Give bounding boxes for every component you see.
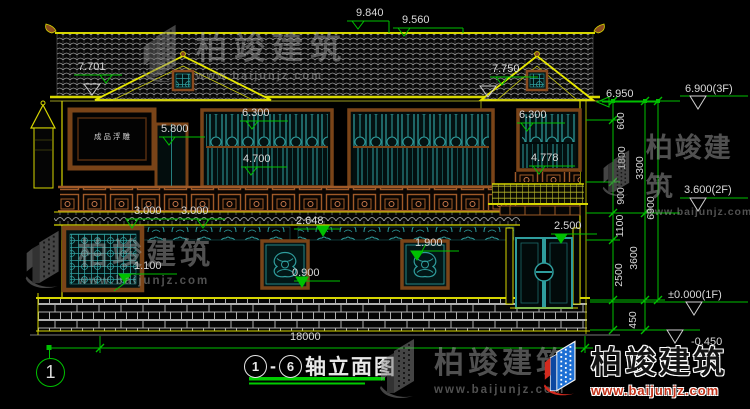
logo-url-text: www.baijunjz.com xyxy=(591,383,727,398)
dim-win1-b: 1.900 xyxy=(415,237,443,249)
watermark-top: 柏竣建筑 www.baijunjz.com xyxy=(140,22,348,82)
dim-total-width: 18000 xyxy=(290,331,321,343)
watermark-brand: 柏竣建筑 xyxy=(646,126,750,204)
balcony-slab xyxy=(54,212,520,225)
dim-bay-b: 3.000 xyxy=(181,205,209,217)
dim-v2500: 2500 xyxy=(613,253,625,297)
watermark-brand: 柏竣建筑 xyxy=(196,23,348,68)
watermark-brand: 柏竣建筑 xyxy=(78,229,214,273)
brand-building-icon xyxy=(378,336,426,398)
logo-brand-text: 柏竣建筑 xyxy=(591,337,727,382)
brand-building-icon xyxy=(602,147,638,197)
window-group-left xyxy=(202,110,332,187)
dim-win-wing: 4.778 xyxy=(531,152,559,164)
entry-canopy xyxy=(488,172,588,215)
dim-v3600: 3600 xyxy=(628,236,640,280)
window-group-center xyxy=(349,110,493,187)
axis-start-bubble: 1 xyxy=(244,355,267,378)
watermark-bottom: 柏竣建筑 www.baijunjz.com xyxy=(378,336,570,398)
dim-gable-right: 7.750 xyxy=(492,63,520,75)
brand-logo: 柏竣建筑 www.baijunjz.com xyxy=(543,336,727,398)
dim-gable-left: 7.701 xyxy=(78,61,106,73)
watermark-url: www.baijunjz.com xyxy=(78,275,214,287)
watermark-left: 柏竣建筑 www.baijunjz.com xyxy=(24,228,214,288)
balcony-railing xyxy=(58,187,520,211)
dim-win-left: 6.300 xyxy=(242,107,270,119)
title-dash: - xyxy=(270,356,276,377)
dim-door-1f: 2.500 xyxy=(554,220,582,232)
dim-win1-a: 0.900 xyxy=(292,267,320,279)
dim-level-1f: ±0.000(1F) xyxy=(668,289,722,301)
brand-building-icon xyxy=(24,228,70,288)
dim-bay-a: 3.000 xyxy=(134,205,162,217)
dim-door-2f: 5.800 xyxy=(161,123,189,135)
dim-top-a: 9.840 xyxy=(356,7,384,19)
roof-finial-right-icon xyxy=(594,24,604,33)
dim-win-mid: 4.700 xyxy=(243,153,271,165)
cad-elevation-canvas: 9.840 9.560 7.701 7.750 6.950 6.900(3F) … xyxy=(0,0,750,409)
axis-end-bubble: 6 xyxy=(279,355,302,378)
dim-top-b: 9.560 xyxy=(402,14,430,26)
brand-building-icon xyxy=(140,22,188,82)
watermark-right: 柏竣建筑 www.baijunjz.com xyxy=(602,126,750,218)
dim-level-3f: 6.900(3F) xyxy=(685,83,733,95)
watermark-url: www.baijunjz.com xyxy=(196,70,348,82)
dim-strip: 2.648 xyxy=(296,215,324,227)
dim-win-right: 6.300 xyxy=(519,109,547,121)
drawing-title: 1 - 6 轴立面图 xyxy=(244,351,397,381)
axis-grid-bubble: 1 xyxy=(36,358,65,387)
watermark-url: www.baijunjz.com xyxy=(646,206,750,218)
relief-panel-label: 成品浮雕 xyxy=(73,131,153,142)
roof-finial-left-icon xyxy=(46,24,56,33)
left-turret xyxy=(31,101,55,188)
brand-logo-icon xyxy=(543,336,585,398)
entry-door xyxy=(506,228,580,308)
